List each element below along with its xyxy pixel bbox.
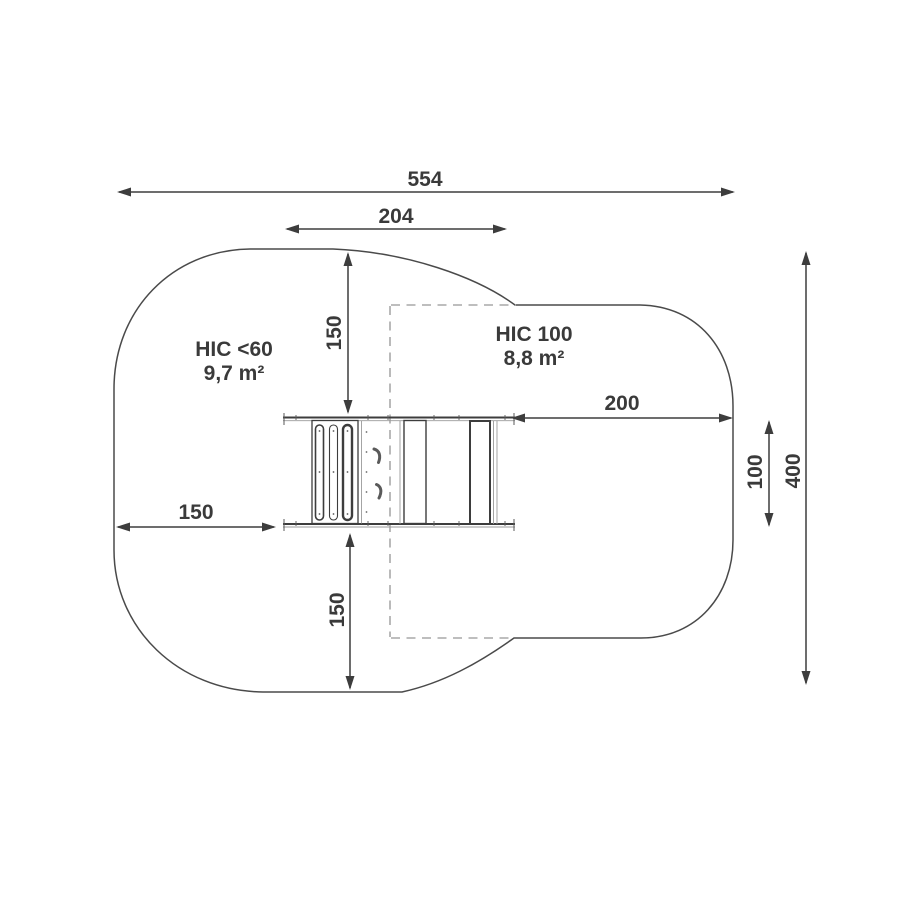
dim-clearance-right: 200 — [511, 392, 733, 423]
arrow-down-icon — [765, 513, 774, 527]
dim-clearance-left: 150 — [116, 501, 276, 532]
dim-total-width: 554 — [117, 168, 735, 197]
dim-zone-height-right-label: 100 — [744, 454, 767, 489]
dim-clearance-right-label: 200 — [604, 392, 639, 415]
arrow-down-icon — [346, 676, 355, 690]
dim-clearance-top-label: 150 — [323, 315, 346, 350]
arrow-right-icon — [721, 188, 735, 197]
dim-total-width-label: 554 — [407, 168, 442, 191]
hic100-label: HIC 100 — [495, 323, 572, 346]
foothold-2 — [377, 485, 381, 499]
arrow-left-icon — [116, 523, 130, 532]
arrow-left-icon — [117, 188, 131, 197]
hic100-area: 8,8 m² — [504, 347, 565, 370]
arrow-up-icon — [802, 251, 811, 265]
zone-label-hic60: HIC <60 9,7 m² — [195, 338, 273, 385]
dim-clearance-bottom: 150 — [326, 533, 355, 690]
arrow-right-icon — [719, 414, 733, 423]
dim-clearance-bottom-label: 150 — [326, 592, 349, 627]
safety-zone-diagram: 554 204 150 150 150 200 10 — [0, 0, 900, 900]
dim-zone-height-right: 100 — [744, 420, 774, 527]
foothold-1 — [374, 449, 380, 463]
dim-total-height: 400 — [782, 251, 811, 685]
arrow-right-icon — [493, 225, 507, 234]
arrow-up-icon — [344, 252, 353, 266]
diagram-canvas: 554 204 150 150 150 200 10 — [0, 0, 900, 900]
arrow-right-icon — [262, 523, 276, 532]
frame-fixing-dots — [366, 431, 368, 513]
zone-label-hic100: HIC 100 8,8 m² — [495, 323, 572, 370]
dim-clearance-top: 150 — [323, 252, 353, 414]
dim-clearance-left-label: 150 — [178, 501, 213, 524]
equipment-plan — [283, 413, 515, 531]
arrow-down-icon — [802, 671, 811, 685]
hic60-area: 9,7 m² — [204, 362, 265, 385]
platform-board-1 — [404, 421, 426, 524]
hic60-label: HIC <60 — [195, 338, 273, 361]
dim-total-height-label: 400 — [782, 453, 805, 488]
dim-equipment-span-label: 204 — [378, 205, 413, 228]
arrow-down-icon — [344, 400, 353, 414]
platform-board-2 — [470, 421, 490, 524]
arrow-up-icon — [346, 533, 355, 547]
arrow-left-icon — [285, 225, 299, 234]
arrow-up-icon — [765, 420, 774, 434]
dim-equipment-span: 204 — [285, 205, 507, 234]
